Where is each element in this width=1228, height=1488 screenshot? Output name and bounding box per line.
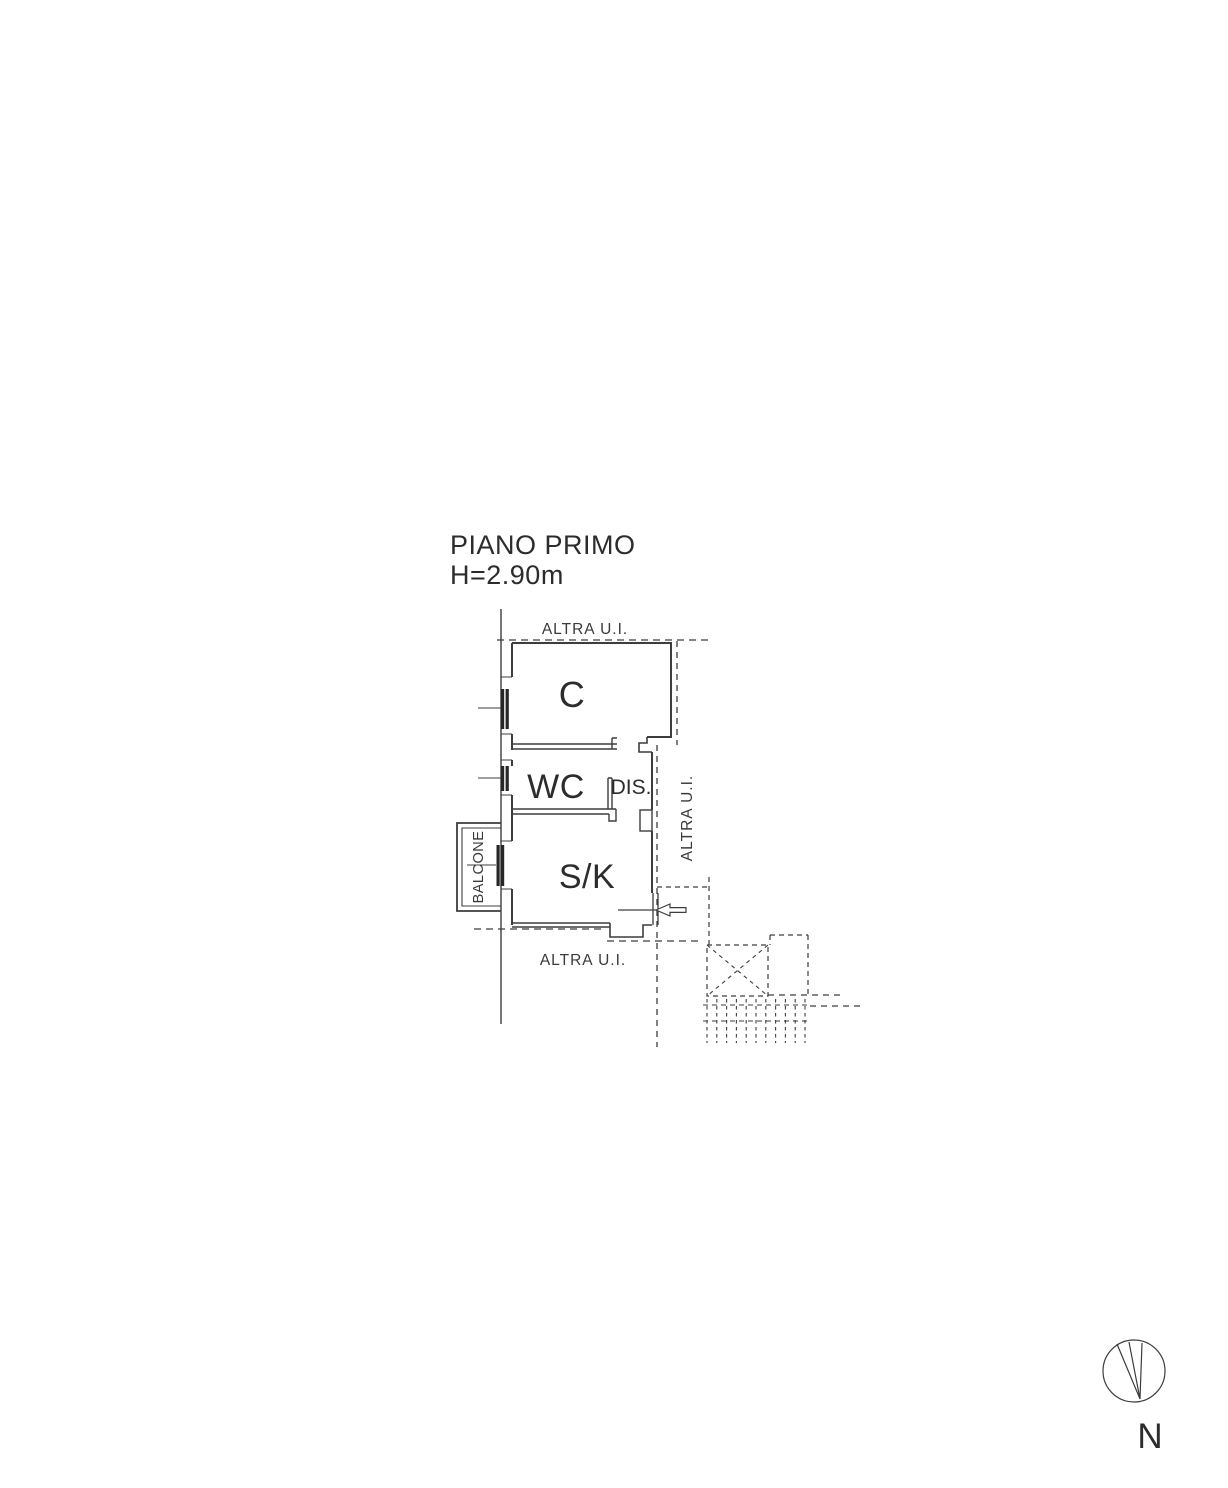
north-label: N bbox=[1137, 1417, 1162, 1456]
other-unit-right-label: ALTRA U.I. bbox=[679, 775, 696, 861]
room-wc-label: WC bbox=[527, 768, 585, 806]
floor-plan-drawing: PIANO PRIMO H=2.90m bbox=[0, 0, 1228, 1488]
elevator-shaft bbox=[707, 945, 768, 996]
floorplan-page: PIANO PRIMO H=2.90m bbox=[0, 0, 1228, 1488]
north-compass-icon bbox=[1103, 1340, 1165, 1402]
boundary-dashed-lines bbox=[474, 640, 862, 1047]
room-sk-label: S/K bbox=[559, 858, 615, 896]
room-c-label: C bbox=[559, 674, 586, 715]
stairs bbox=[703, 999, 810, 1043]
other-unit-bottom-label: ALTRA U.I. bbox=[540, 952, 626, 969]
entrance-arrow-icon bbox=[618, 904, 686, 916]
room-dis-label: DIS. bbox=[611, 776, 652, 799]
other-unit-top-label: ALTRA U.I. bbox=[542, 621, 628, 638]
plan-title: PIANO PRIMO bbox=[450, 530, 636, 560]
balcony-label: BALCONE bbox=[471, 831, 487, 904]
plan-height-label: H=2.90m bbox=[450, 560, 564, 590]
